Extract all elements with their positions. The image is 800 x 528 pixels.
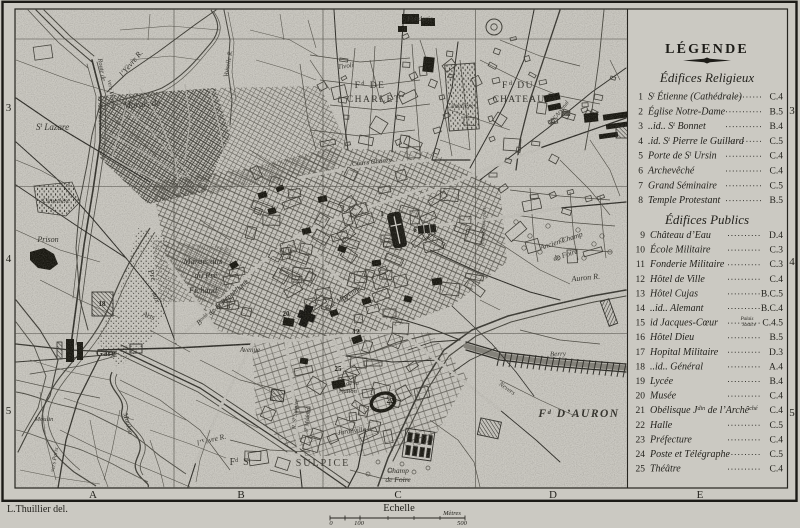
svg-text:4: 4 bbox=[638, 137, 643, 147]
svg-text:Hôtel de Ville: Hôtel de Ville bbox=[649, 274, 705, 285]
svg-text:Lycée: Lycée bbox=[649, 376, 674, 387]
svg-text:Église Notre-Dame: Église Notre-Dame bbox=[647, 105, 726, 117]
svg-text:17: 17 bbox=[636, 348, 646, 358]
svg-text:500: 500 bbox=[457, 520, 468, 527]
svg-text:Hôtel Cujas: Hôtel Cujas bbox=[649, 288, 698, 299]
svg-text:C.4: C.4 bbox=[770, 167, 784, 177]
svg-text:C.3: C.3 bbox=[770, 246, 784, 256]
svg-text:14: 14 bbox=[636, 304, 646, 314]
svg-text:20: 20 bbox=[636, 392, 646, 402]
svg-text:4: 4 bbox=[789, 256, 795, 268]
svg-text:..id.. Alemant: ..id.. Alemant bbox=[650, 303, 704, 314]
svg-text:5: 5 bbox=[638, 152, 643, 162]
svg-text:D.4: D.4 bbox=[769, 231, 783, 241]
svg-text:Théâtre: Théâtre bbox=[650, 464, 681, 475]
svg-text:B.4: B.4 bbox=[770, 377, 784, 387]
svg-text:B.C.5: B.C.5 bbox=[761, 289, 783, 299]
svg-text:3: 3 bbox=[638, 122, 643, 132]
svg-text:C.4: C.4 bbox=[770, 275, 784, 285]
svg-text:C.5: C.5 bbox=[770, 137, 784, 147]
svg-text:24: 24 bbox=[636, 450, 646, 460]
svg-text:E: E bbox=[697, 489, 704, 501]
svg-text:10: 10 bbox=[636, 246, 646, 256]
svg-text:Édifices Publics: Édifices Publics bbox=[664, 212, 749, 227]
svg-text:..id.. St Bonnet: ..id.. St Bonnet bbox=[648, 121, 706, 132]
svg-text:Mètres: Mètres bbox=[442, 510, 461, 517]
svg-text:C.4: C.4 bbox=[770, 406, 784, 416]
svg-text:Fonderie Militaire: Fonderie Militaire bbox=[649, 259, 725, 270]
svg-text:Echelle: Echelle bbox=[383, 503, 415, 514]
svg-text:LÉGENDE: LÉGENDE bbox=[665, 40, 749, 57]
svg-text:B.5: B.5 bbox=[770, 333, 784, 343]
svg-text:L.Thuillier del.: L.Thuillier del. bbox=[7, 504, 68, 515]
svg-text:16: 16 bbox=[636, 333, 646, 343]
svg-text:8: 8 bbox=[638, 196, 643, 206]
svg-text:100: 100 bbox=[354, 520, 365, 527]
svg-text:Halle: Halle bbox=[649, 420, 673, 431]
svg-text:C.5: C.5 bbox=[770, 450, 784, 460]
svg-text:11: 11 bbox=[636, 260, 645, 270]
svg-text:C.4: C.4 bbox=[770, 465, 784, 475]
svg-text:Justice: Justice bbox=[742, 323, 757, 328]
svg-text:4: 4 bbox=[6, 253, 12, 265]
svg-text:12: 12 bbox=[636, 275, 646, 285]
svg-text:22: 22 bbox=[636, 421, 646, 431]
svg-text:Poste et Télégraphe: Poste et Télégraphe bbox=[649, 449, 731, 460]
svg-text:Château d’Eau: Château d’Eau bbox=[650, 230, 711, 241]
svg-text:Musée: Musée bbox=[649, 391, 677, 402]
svg-text:C: C bbox=[394, 489, 401, 501]
svg-text:19: 19 bbox=[636, 377, 646, 387]
svg-text:9: 9 bbox=[640, 231, 645, 241]
svg-text:Hopital Militaire: Hopital Militaire bbox=[649, 347, 719, 358]
svg-text:B.5: B.5 bbox=[770, 196, 784, 206]
svg-text:Archevêché: Archevêché bbox=[647, 166, 695, 177]
svg-text:id Jacques-Cœur: id Jacques-Cœur bbox=[650, 318, 718, 329]
svg-text:Palais: Palais bbox=[740, 317, 754, 322]
svg-text:3: 3 bbox=[789, 105, 795, 117]
svg-text:23: 23 bbox=[636, 435, 646, 445]
svg-text:6: 6 bbox=[638, 167, 643, 177]
svg-text:1: 1 bbox=[638, 93, 643, 103]
svg-text:Porte de St Ursin: Porte de St Ursin bbox=[647, 151, 717, 162]
svg-text:C.4: C.4 bbox=[770, 435, 784, 445]
svg-text:B.4: B.4 bbox=[770, 122, 784, 132]
svg-text:5: 5 bbox=[789, 407, 795, 419]
svg-text:D.3: D.3 bbox=[769, 348, 783, 358]
svg-text:15: 15 bbox=[636, 319, 646, 329]
svg-text:C.4.5: C.4.5 bbox=[762, 319, 783, 329]
svg-text:7: 7 bbox=[638, 181, 643, 191]
svg-text:5: 5 bbox=[6, 405, 12, 417]
svg-text:C.4: C.4 bbox=[770, 152, 784, 162]
svg-text:A.4: A.4 bbox=[769, 362, 783, 372]
svg-text:Temple Protestant: Temple Protestant bbox=[648, 195, 721, 206]
svg-text:B: B bbox=[237, 489, 244, 501]
svg-text:D: D bbox=[549, 489, 557, 501]
svg-text:13: 13 bbox=[636, 289, 646, 299]
svg-text:B.5: B.5 bbox=[770, 107, 784, 117]
svg-text:École Militaire: École Militaire bbox=[649, 244, 711, 256]
svg-text:C.4: C.4 bbox=[770, 392, 784, 402]
svg-text:C.4: C.4 bbox=[770, 93, 784, 103]
svg-text:C.5: C.5 bbox=[770, 181, 784, 191]
svg-text:25: 25 bbox=[636, 465, 646, 475]
svg-text:2: 2 bbox=[638, 107, 643, 117]
svg-text:3: 3 bbox=[6, 102, 12, 114]
svg-text:Grand Séminaire: Grand Séminaire bbox=[648, 180, 717, 191]
svg-text:Édifices Religieux: Édifices Religieux bbox=[659, 70, 754, 85]
svg-text:C.3: C.3 bbox=[770, 260, 784, 270]
svg-text:Préfecture: Préfecture bbox=[649, 434, 692, 445]
svg-text:18: 18 bbox=[636, 362, 646, 372]
svg-text:..id.. Général: ..id.. Général bbox=[650, 361, 703, 372]
svg-text:C.5: C.5 bbox=[770, 421, 784, 431]
svg-text:21: 21 bbox=[636, 406, 646, 416]
svg-text:B.C.4: B.C.4 bbox=[761, 304, 783, 314]
svg-text:A: A bbox=[89, 489, 97, 501]
svg-text:St Étienne (Cathédrale): St Étienne (Cathédrale) bbox=[648, 91, 743, 103]
svg-text:Hôtel Dieu: Hôtel Dieu bbox=[649, 332, 694, 343]
